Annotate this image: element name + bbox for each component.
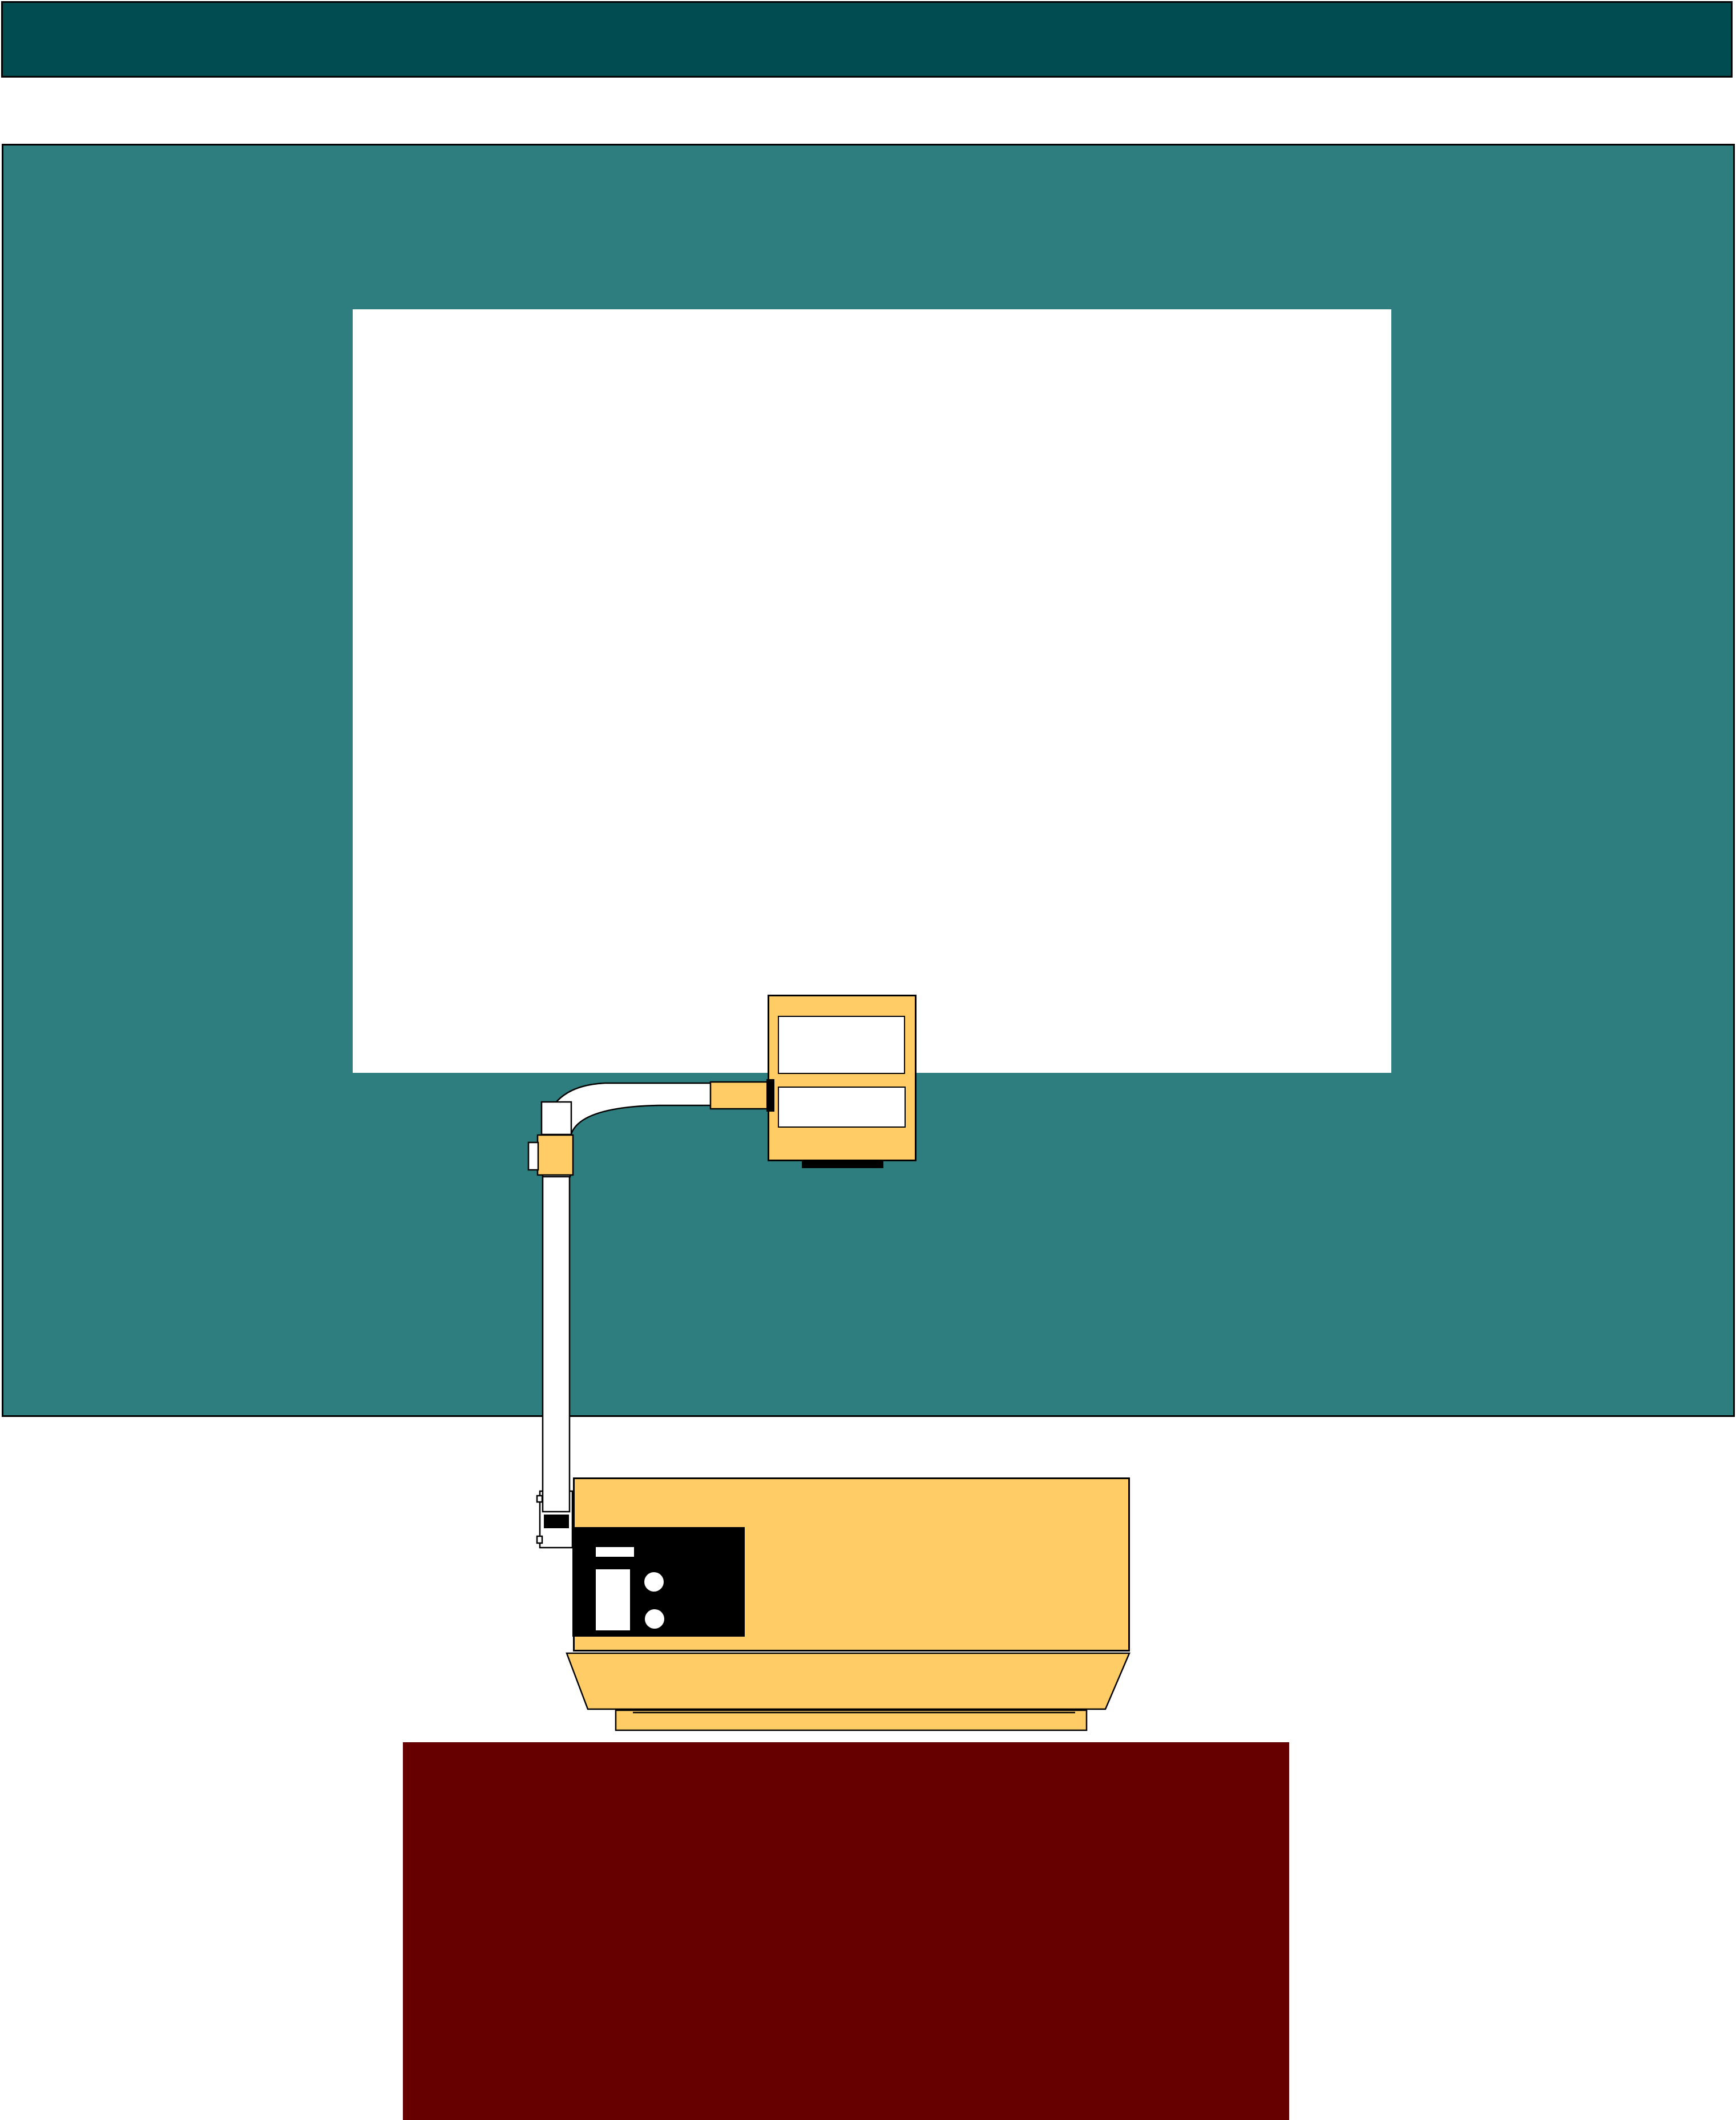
ceiling-band xyxy=(1,1,1733,78)
head-connector xyxy=(710,1082,768,1109)
arm-clamp xyxy=(538,1135,573,1175)
panel-knob-top xyxy=(644,1572,664,1592)
panel-knob-bottom xyxy=(645,1609,664,1629)
control-panel xyxy=(572,1527,745,1637)
projector-head xyxy=(768,995,917,1161)
projection-screen xyxy=(353,309,1391,1073)
base-trapezoid xyxy=(567,1653,1129,1709)
bracket-knob xyxy=(544,1515,569,1528)
panel-slider xyxy=(596,1569,630,1630)
bracket-tab-bottom xyxy=(537,1536,542,1543)
head-base-strip xyxy=(802,1161,883,1168)
head-joint-bar xyxy=(766,1079,774,1112)
bracket-tab-top xyxy=(537,1496,542,1502)
elbow-joint xyxy=(542,1102,571,1134)
projector-arm xyxy=(514,1073,782,1558)
panel-slot xyxy=(596,1547,634,1557)
head-window-top xyxy=(778,1016,905,1074)
scene xyxy=(0,0,1736,2120)
projector-base xyxy=(562,1649,1139,1735)
head-window-bottom xyxy=(778,1087,906,1128)
arm-post xyxy=(543,1175,570,1512)
clamp-handle xyxy=(528,1142,538,1170)
table xyxy=(403,1742,1289,2120)
